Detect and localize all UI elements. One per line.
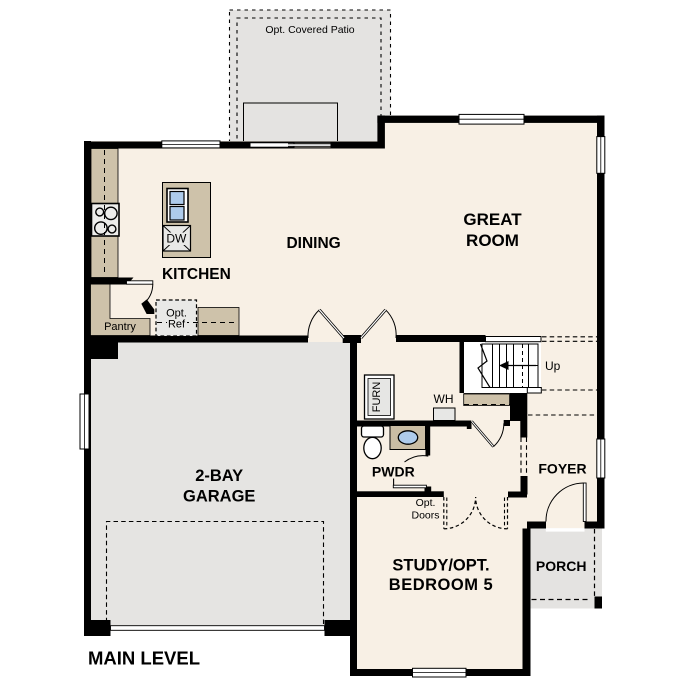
svg-text:KITCHEN: KITCHEN (162, 266, 231, 283)
svg-text:PORCH: PORCH (536, 558, 587, 574)
svg-text:DINING: DINING (286, 235, 340, 252)
svg-text:FOYER: FOYER (538, 461, 586, 477)
svg-text:Up: Up (545, 359, 561, 373)
svg-text:STUDY/OPT.: STUDY/OPT. (392, 557, 489, 575)
svg-text:BEDROOM 5: BEDROOM 5 (389, 576, 493, 594)
svg-text:MAIN LEVEL: MAIN LEVEL (88, 648, 200, 669)
svg-text:Pantry: Pantry (104, 321, 136, 333)
svg-text:Ref: Ref (168, 319, 186, 331)
svg-text:PWDR: PWDR (372, 464, 415, 480)
svg-text:GREAT: GREAT (463, 210, 522, 229)
svg-text:Opt. Covered Patio: Opt. Covered Patio (265, 24, 354, 36)
svg-text:2-BAY: 2-BAY (195, 467, 243, 485)
svg-text:Doors: Doors (411, 510, 439, 522)
svg-text:WH: WH (434, 392, 454, 406)
svg-text:FURN: FURN (371, 382, 383, 413)
svg-text:GARAGE: GARAGE (183, 488, 255, 506)
svg-text:Opt.: Opt. (416, 497, 436, 509)
svg-text:ROOM: ROOM (466, 231, 519, 250)
svg-text:DW: DW (166, 232, 187, 246)
